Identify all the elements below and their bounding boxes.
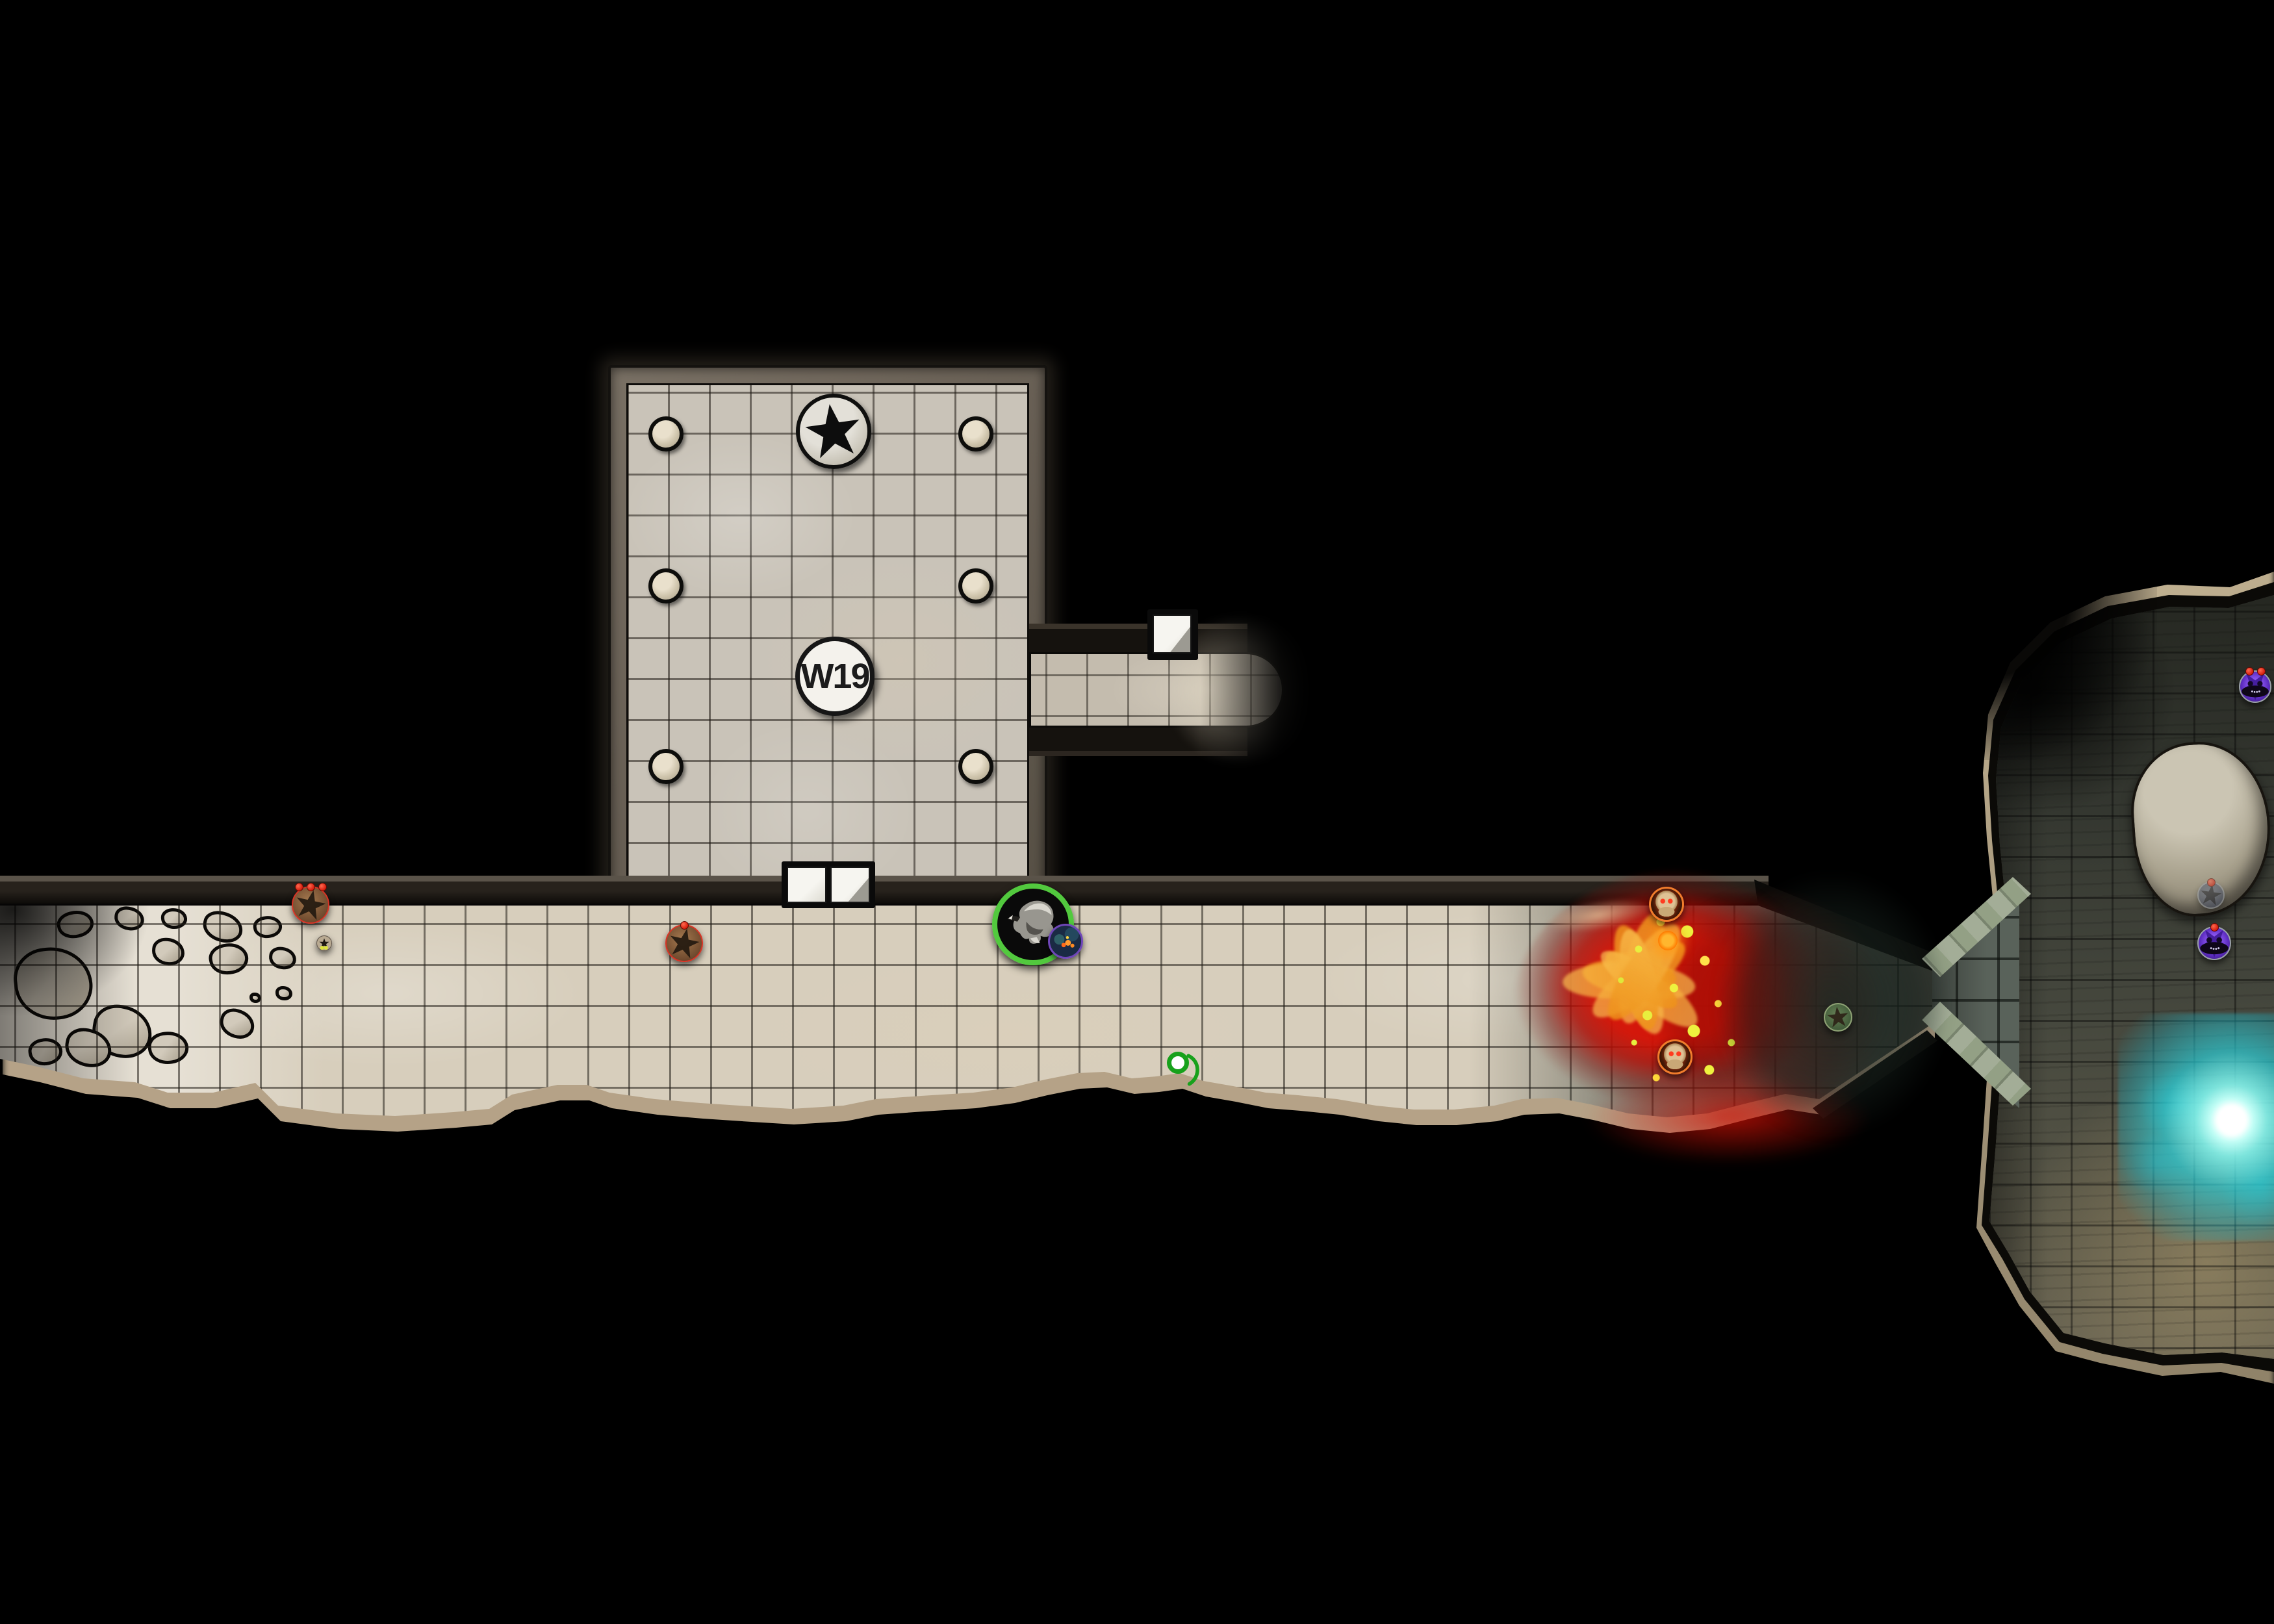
token-art	[1651, 889, 1682, 920]
damage-pips	[2199, 923, 2229, 932]
token-art	[1050, 926, 1081, 957]
token-layer	[0, 0, 2274, 1624]
token-art	[1171, 1056, 1185, 1070]
damage-pips	[294, 883, 327, 891]
token-art	[2240, 672, 2270, 702]
star-marker-mini[interactable]	[316, 935, 332, 951]
damage-pips	[2241, 667, 2269, 676]
token-art	[667, 926, 702, 961]
star-marker-mid[interactable]	[665, 924, 703, 962]
token-art	[293, 887, 328, 922]
purple-devil-south[interactable]	[2197, 926, 2231, 960]
token-art	[1659, 1041, 1691, 1072]
annotation-arc-icon	[1186, 1047, 1204, 1093]
token-art	[2199, 928, 2230, 959]
purple-devil-north[interactable]	[2239, 670, 2271, 703]
star-marker-faded[interactable]	[2197, 882, 2225, 909]
token-art	[1825, 1004, 1851, 1030]
vtt-map-canvas: W19	[0, 0, 2274, 1624]
star-marker-west[interactable]	[292, 886, 329, 924]
damage-pips	[667, 921, 701, 930]
star-marker-green[interactable]	[1824, 1003, 1852, 1032]
skull-creature-south[interactable]	[1657, 1039, 1693, 1074]
magma-creature[interactable]	[1048, 924, 1083, 959]
skull-creature-north[interactable]	[1649, 887, 1684, 922]
token-art	[317, 936, 331, 950]
damage-pips	[2199, 878, 2223, 887]
annotation-ring[interactable]	[1167, 1052, 1189, 1074]
